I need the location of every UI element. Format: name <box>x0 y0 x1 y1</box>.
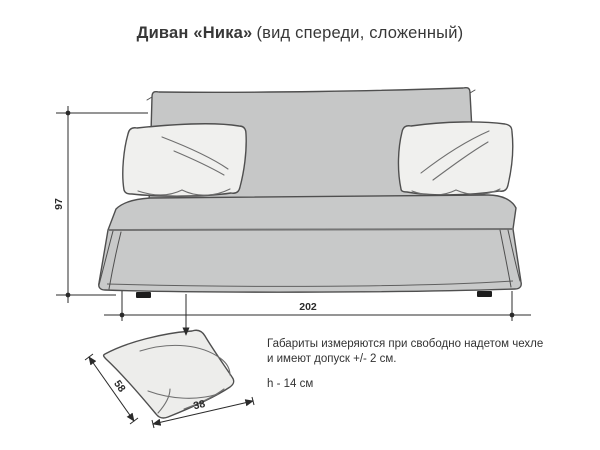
left-pillow-outline <box>123 124 246 196</box>
sofa-left-pillow <box>123 124 246 196</box>
pillow-height-note: h - 14 см <box>267 377 313 392</box>
tolerance-note-line1: Габариты измеряются при свободно надетом… <box>267 337 577 352</box>
diagram-page: Диван «Ника»(вид спереди, сложенный) 97 <box>0 0 600 450</box>
tolerance-note-line2: и имеют допуск +/- 2 см. <box>267 352 577 367</box>
width-dim-dot-right <box>510 313 515 318</box>
backrest-corner-fold-right <box>470 90 475 93</box>
pillow-depth-tick-end <box>130 418 138 424</box>
tolerance-note: Габариты измеряются при свободно надетом… <box>267 337 577 367</box>
right-pillow-outline <box>398 122 512 195</box>
sofa-foot-left <box>136 292 151 298</box>
height-dim-dot-bottom <box>66 293 71 298</box>
height-dim-label: 97 <box>53 198 65 210</box>
height-dim-dot-top <box>66 111 71 116</box>
width-dim-dot-left <box>120 313 125 318</box>
sofa-drawing <box>99 88 522 298</box>
pillow-depth-tick-start <box>85 354 93 360</box>
sofa-right-pillow <box>398 122 512 195</box>
sofa-foot-right <box>477 291 492 297</box>
width-dim-label: 202 <box>299 301 317 313</box>
width-dimension: 202 <box>104 291 531 321</box>
skirt-seam-line <box>109 229 513 230</box>
sofa-seat-and-skirt <box>99 195 522 292</box>
